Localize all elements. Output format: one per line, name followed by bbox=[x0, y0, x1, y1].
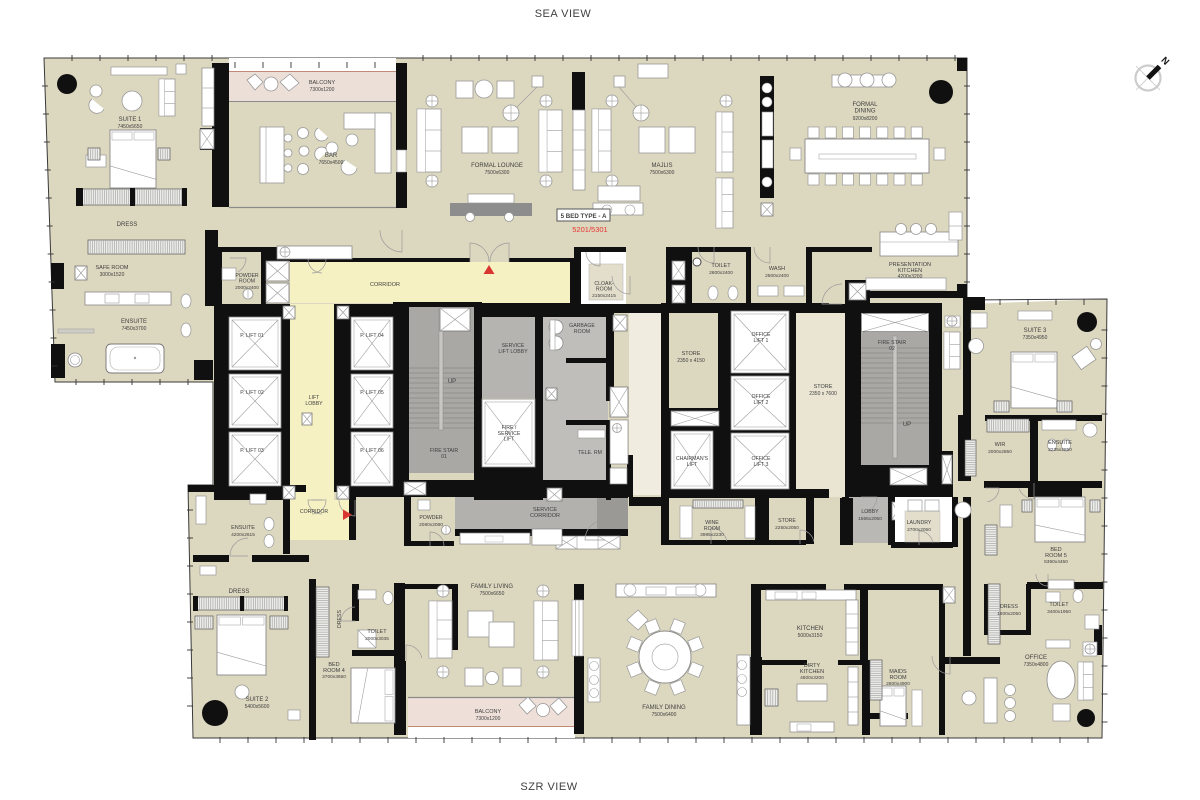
svg-text:CORRIDOR: CORRIDOR bbox=[530, 513, 560, 519]
svg-text:TELE. RM: TELE. RM bbox=[578, 450, 602, 456]
svg-text:02: 02 bbox=[889, 346, 895, 352]
svg-text:4200x2615: 4200x2615 bbox=[231, 532, 255, 538]
svg-text:ROOM 5: ROOM 5 bbox=[1045, 553, 1067, 559]
svg-text:SAFE ROOM: SAFE ROOM bbox=[95, 265, 128, 271]
svg-text:5400x5600: 5400x5600 bbox=[245, 704, 270, 710]
svg-text:3235x2850: 3235x2850 bbox=[1048, 447, 1072, 453]
svg-text:LIFT LOBBY: LIFT LOBBY bbox=[498, 349, 528, 355]
svg-text:ROOM: ROOM bbox=[889, 675, 907, 681]
svg-text:LIFT: LIFT bbox=[504, 437, 515, 443]
svg-text:4200x3200: 4200x3200 bbox=[898, 274, 923, 280]
svg-text:LOBBY: LOBBY bbox=[861, 509, 879, 515]
svg-text:FORMAL: FORMAL bbox=[852, 102, 878, 108]
svg-text:4600x3200: 4600x3200 bbox=[800, 675, 824, 681]
svg-text:2350 x 7600: 2350 x 7600 bbox=[809, 391, 837, 397]
svg-text:WASH: WASH bbox=[769, 266, 785, 272]
svg-text:7500x6300: 7500x6300 bbox=[650, 170, 675, 176]
svg-text:3985x2230: 3985x2230 bbox=[700, 532, 724, 538]
svg-text:P. LIFT 01: P. LIFT 01 bbox=[240, 333, 264, 339]
svg-text:FORMAL LOUNGE: FORMAL LOUNGE bbox=[471, 163, 523, 169]
svg-text:01: 01 bbox=[441, 454, 447, 460]
svg-text:2000x3035: 2000x3035 bbox=[365, 636, 389, 642]
svg-text:2000x2850: 2000x2850 bbox=[988, 449, 1012, 455]
svg-text:1800x2050: 1800x2050 bbox=[997, 611, 1021, 617]
svg-text:FAMILY DINING: FAMILY DINING bbox=[642, 705, 686, 711]
svg-text:TOILET: TOILET bbox=[1049, 602, 1069, 608]
svg-text:7450x5650: 7450x5650 bbox=[118, 124, 143, 130]
svg-text:2800x4900: 2800x4900 bbox=[886, 681, 910, 687]
svg-text:ROOM: ROOM bbox=[574, 329, 590, 335]
svg-text:2600x2400: 2600x2400 bbox=[709, 270, 733, 276]
svg-text:STORE: STORE bbox=[778, 518, 796, 524]
svg-text:7650x4500: 7650x4500 bbox=[319, 160, 344, 166]
svg-text:SUITE 2: SUITE 2 bbox=[246, 697, 269, 703]
svg-text:ROOM: ROOM bbox=[596, 287, 612, 293]
svg-text:CORRIDOR: CORRIDOR bbox=[300, 509, 328, 515]
svg-text:5201/5301: 5201/5301 bbox=[572, 225, 607, 234]
svg-text:SUITE 1: SUITE 1 bbox=[119, 117, 142, 123]
svg-text:ENSUITE: ENSUITE bbox=[231, 525, 255, 531]
svg-text:2350 x 4150: 2350 x 4150 bbox=[677, 358, 705, 364]
svg-text:DINING: DINING bbox=[855, 109, 876, 115]
svg-text:3000x1520: 3000x1520 bbox=[100, 272, 125, 278]
svg-text:5350x4450: 5350x4450 bbox=[1044, 559, 1068, 565]
svg-text:7450x3700: 7450x3700 bbox=[122, 326, 147, 332]
svg-text:KITCHEN: KITCHEN bbox=[800, 669, 824, 675]
svg-text:2000x2400: 2000x2400 bbox=[235, 285, 259, 291]
svg-text:DRESS: DRESS bbox=[337, 610, 343, 628]
svg-text:2250x2050: 2250x2050 bbox=[775, 525, 799, 531]
svg-text:9200x8200: 9200x8200 bbox=[853, 116, 878, 122]
svg-text:LOBBY: LOBBY bbox=[305, 401, 323, 407]
svg-text:UP: UP bbox=[903, 422, 911, 428]
svg-text:WIR: WIR bbox=[995, 442, 1006, 448]
svg-text:FAMILY LIVING: FAMILY LIVING bbox=[471, 584, 513, 590]
svg-text:KITCHEN: KITCHEN bbox=[797, 626, 823, 632]
svg-text:ROOM: ROOM bbox=[704, 526, 720, 532]
svg-text:OFFICE: OFFICE bbox=[1025, 655, 1047, 661]
svg-text:SUITE 3: SUITE 3 bbox=[1024, 328, 1047, 334]
svg-text:2700x2050: 2700x2050 bbox=[907, 527, 931, 533]
svg-text:TOILET: TOILET bbox=[711, 263, 731, 269]
svg-text:LIFT 1: LIFT 1 bbox=[754, 338, 769, 344]
svg-text:2500x2400: 2500x2400 bbox=[765, 273, 789, 279]
svg-text:DRESS: DRESS bbox=[229, 589, 250, 595]
svg-text:LIFT 2: LIFT 2 bbox=[754, 400, 769, 406]
svg-text:7350x4950: 7350x4950 bbox=[1023, 335, 1048, 341]
svg-text:2150x2415: 2150x2415 bbox=[592, 293, 616, 299]
svg-text:5 BED TYPE - A: 5 BED TYPE - A bbox=[561, 213, 607, 220]
svg-text:STORE: STORE bbox=[682, 351, 701, 357]
svg-text:1565x2050: 1565x2050 bbox=[858, 516, 882, 522]
svg-text:STORE: STORE bbox=[814, 384, 833, 390]
svg-text:BAR: BAR bbox=[325, 153, 338, 159]
svg-text:SEA VIEW: SEA VIEW bbox=[535, 8, 592, 20]
svg-text:7300x1200: 7300x1200 bbox=[310, 87, 335, 93]
svg-text:SZR VIEW: SZR VIEW bbox=[520, 781, 577, 793]
svg-text:LIFT: LIFT bbox=[687, 462, 698, 468]
svg-text:P. LIFT 06: P. LIFT 06 bbox=[360, 448, 384, 454]
svg-text:7500x6400: 7500x6400 bbox=[652, 712, 677, 718]
svg-text:MAJLIS: MAJLIS bbox=[651, 163, 672, 169]
svg-text:LIFT 3: LIFT 3 bbox=[754, 462, 769, 468]
svg-text:7300x1200: 7300x1200 bbox=[476, 716, 501, 722]
svg-text:LAUNDRY: LAUNDRY bbox=[907, 520, 932, 526]
svg-text:ENSUITE: ENSUITE bbox=[121, 319, 147, 325]
svg-text:P. LIFT 03: P. LIFT 03 bbox=[240, 448, 264, 454]
svg-text:DRESS: DRESS bbox=[117, 222, 138, 228]
svg-text:POWDER: POWDER bbox=[419, 515, 443, 521]
svg-text:ENSUITE: ENSUITE bbox=[1048, 440, 1072, 446]
svg-text:P. LIFT 02: P. LIFT 02 bbox=[240, 390, 264, 396]
svg-text:BALCONY: BALCONY bbox=[475, 709, 502, 715]
svg-text:2080x2080: 2080x2080 bbox=[419, 522, 443, 528]
svg-text:7500x6300: 7500x6300 bbox=[485, 170, 510, 176]
svg-text:UP: UP bbox=[448, 379, 456, 385]
svg-text:P. LIFT 05: P. LIFT 05 bbox=[360, 390, 384, 396]
svg-text:P. LIFT 04: P. LIFT 04 bbox=[360, 333, 384, 339]
svg-text:3700x3650: 3700x3650 bbox=[322, 674, 346, 680]
svg-text:CORRIDOR: CORRIDOR bbox=[370, 282, 400, 288]
svg-text:ROOM: ROOM bbox=[239, 279, 255, 285]
svg-text:3400x1950: 3400x1950 bbox=[1047, 609, 1071, 615]
svg-text:5000x3150: 5000x3150 bbox=[798, 633, 823, 639]
svg-text:7350x4800: 7350x4800 bbox=[1024, 662, 1049, 668]
svg-text:ROOM 4: ROOM 4 bbox=[323, 668, 345, 674]
svg-text:TOILET: TOILET bbox=[367, 629, 387, 635]
svg-text:BALCONY: BALCONY bbox=[309, 80, 336, 86]
svg-text:7500x6650: 7500x6650 bbox=[480, 591, 505, 597]
svg-text:DRESS: DRESS bbox=[1000, 604, 1018, 610]
